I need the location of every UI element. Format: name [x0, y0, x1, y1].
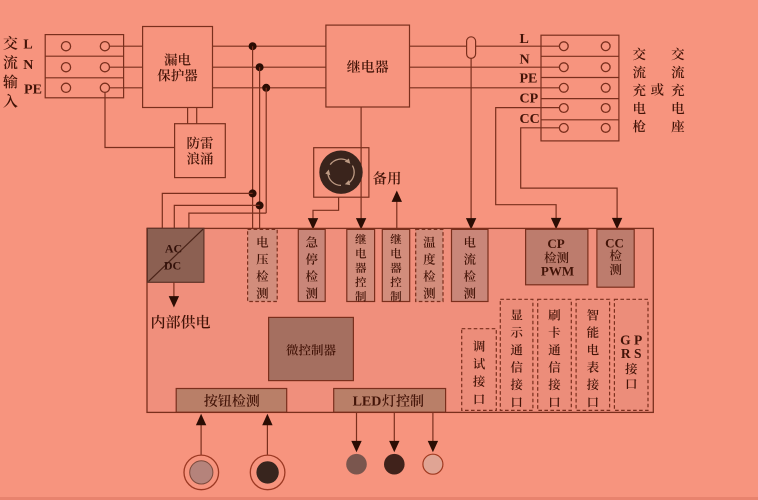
svg-text:PWM: PWM: [541, 263, 574, 278]
svg-text:CC: CC: [605, 235, 624, 250]
svg-text:DC: DC: [164, 259, 181, 273]
svg-text:CP: CP: [547, 236, 564, 251]
svg-text:L: L: [520, 32, 529, 47]
svg-text:L: L: [23, 38, 32, 53]
svg-text:CP: CP: [520, 92, 539, 107]
svg-text:LED: LED: [353, 394, 382, 409]
svg-text:N: N: [520, 53, 530, 68]
svg-text:PE: PE: [24, 83, 42, 98]
svg-text:R S: R S: [621, 346, 642, 361]
svg-text:CC: CC: [520, 112, 540, 127]
svg-text:N: N: [23, 58, 33, 73]
svg-text:PE: PE: [520, 72, 538, 87]
svg-text:AC: AC: [165, 242, 182, 256]
